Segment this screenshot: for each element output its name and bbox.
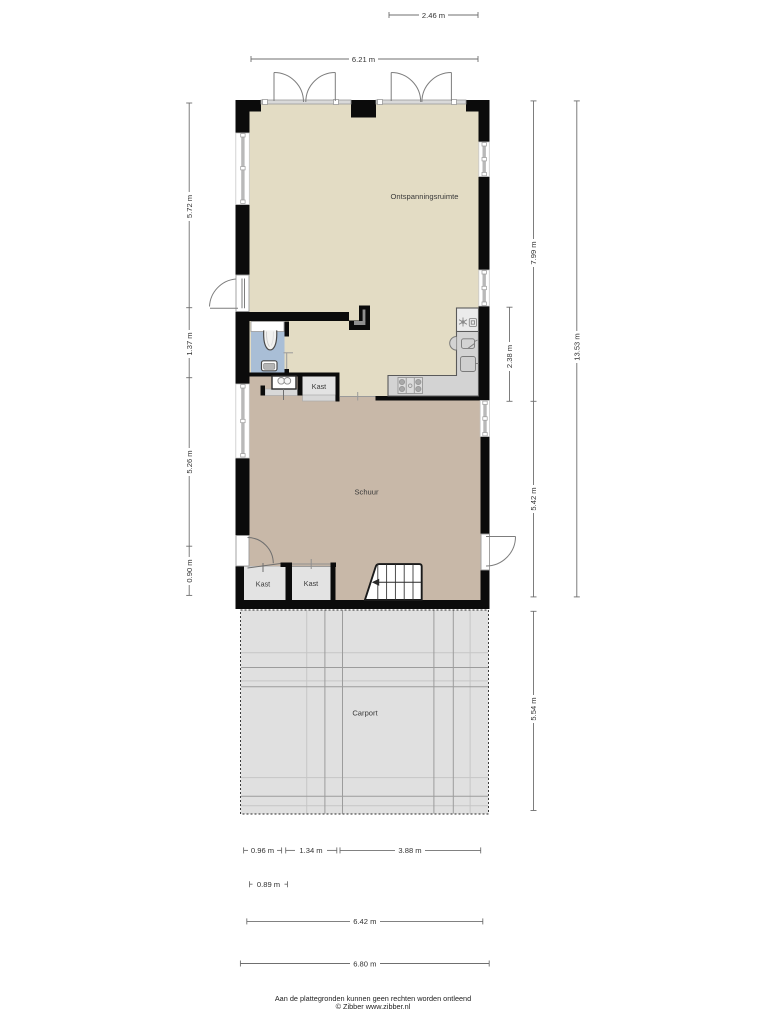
svg-text:6.21 m: 6.21 m	[352, 55, 375, 64]
svg-text:0.89 m: 0.89 m	[257, 880, 280, 889]
svg-text:1.37 m: 1.37 m	[185, 332, 194, 355]
svg-text:Kast: Kast	[304, 579, 318, 588]
svg-text:6.42 m: 6.42 m	[353, 917, 376, 926]
svg-text:Carport: Carport	[352, 709, 378, 718]
svg-text:2.38 m: 2.38 m	[505, 345, 514, 368]
svg-text:3.88 m: 3.88 m	[398, 846, 421, 855]
svg-text:Kast: Kast	[312, 382, 326, 391]
svg-text:5.54 m: 5.54 m	[529, 697, 538, 720]
svg-text:0.90 m: 0.90 m	[185, 559, 194, 582]
svg-text:7.99 m: 7.99 m	[529, 241, 538, 264]
svg-text:5.26 m: 5.26 m	[185, 450, 194, 473]
svg-text:Kast: Kast	[256, 580, 270, 589]
svg-text:13.53 m: 13.53 m	[572, 333, 581, 360]
svg-text:Ontspanningsruimte: Ontspanningsruimte	[391, 192, 459, 201]
svg-text:1.34 m: 1.34 m	[299, 846, 322, 855]
svg-text:Schuur: Schuur	[354, 488, 379, 497]
svg-text:5.72 m: 5.72 m	[185, 195, 194, 218]
svg-text:© Zibber www.zibber.nl: © Zibber www.zibber.nl	[336, 1002, 411, 1011]
svg-text:0.96 m: 0.96 m	[251, 846, 274, 855]
svg-text:5.42 m: 5.42 m	[529, 487, 538, 510]
svg-text:6.80 m: 6.80 m	[353, 959, 376, 968]
svg-text:2.46 m: 2.46 m	[422, 11, 445, 20]
